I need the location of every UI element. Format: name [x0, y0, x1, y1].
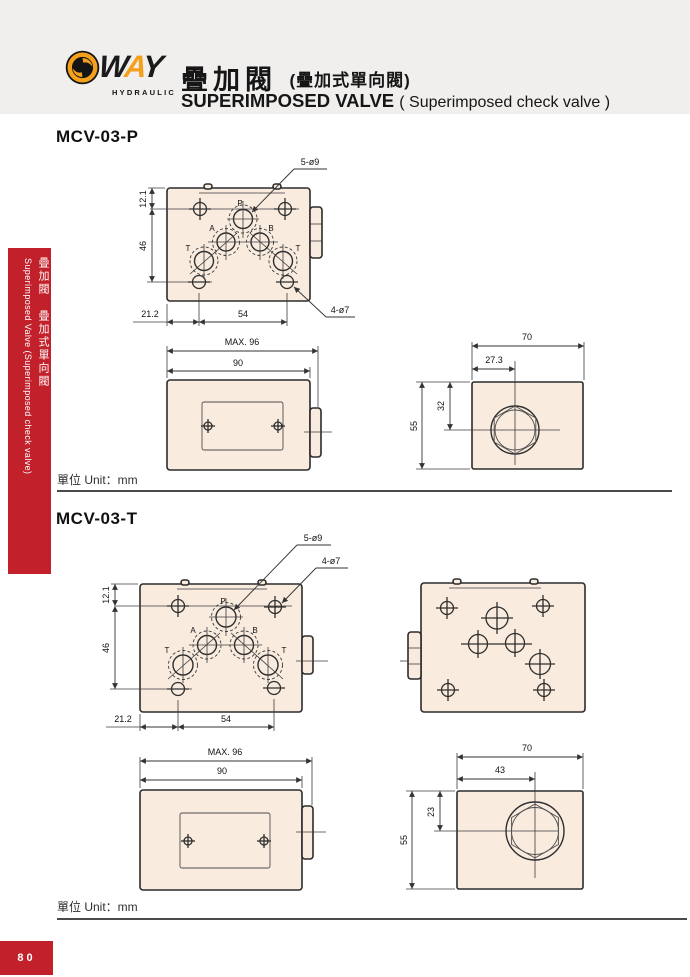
- catalog-page: WAY HYDRAULIC 疊加閥 (疊加式單向閥) SUPERIMPOSED …: [0, 0, 690, 977]
- callout-4-d7: 4-ø7: [331, 305, 350, 315]
- section-heading-mcv03p: MCV-03-P: [56, 127, 138, 147]
- callout-4-d7: 4-ø7: [322, 556, 341, 566]
- side-tab-en: Superimposed Valve (Superimposed check v…: [23, 258, 33, 574]
- dim-70: 70: [522, 332, 532, 342]
- port-label-t2: T: [282, 646, 287, 655]
- dim-55: 55: [399, 835, 409, 845]
- check-cartridge: [408, 632, 421, 679]
- port-label-b: B: [252, 626, 257, 635]
- dim-27-3: 27.3: [485, 355, 503, 365]
- dim-90: 90: [233, 358, 243, 368]
- port-label-t1: T: [186, 244, 191, 253]
- side-tab-cn: 疊加閥 疊加式單向閥: [35, 257, 51, 574]
- page-title-en: SUPERIMPOSED VALVE ( Superimposed check …: [181, 90, 610, 112]
- title-en-note: ( Superimposed check valve ): [399, 94, 610, 111]
- dim-21-2: 21.2: [141, 309, 159, 319]
- dim-54: 54: [221, 714, 231, 724]
- brand-wordmark: WAY: [97, 49, 163, 85]
- mcv03t-drawings: P A B T T 12.1 46 21.2 54 5-ø9 4-ø7: [50, 528, 690, 896]
- port-label-a: A: [209, 224, 215, 233]
- title-cn-note: (疊加式單向閥): [290, 71, 411, 90]
- dim-12-1: 12.1: [101, 586, 111, 604]
- dim-max96: MAX. 96: [225, 337, 260, 347]
- dim-32: 32: [436, 401, 446, 411]
- unit-note-t: 單位 Unit：mm: [57, 898, 138, 915]
- callout-5-d9: 5-ø9: [304, 533, 323, 543]
- footer-divider: [57, 918, 687, 920]
- dim-46: 46: [101, 643, 111, 653]
- page-number: 80: [0, 941, 53, 975]
- mcv03p-top-view: P A B T T 12.1 46 21.2 54 5-ø9 4-ø7: [133, 157, 355, 326]
- dim-max96: MAX. 96: [208, 747, 243, 757]
- valve-body: [167, 380, 310, 470]
- dim-90: 90: [217, 766, 227, 776]
- dim-43: 43: [495, 765, 505, 775]
- port-label-a: A: [190, 626, 196, 635]
- callout-5-d9: 5-ø9: [301, 157, 320, 167]
- section-divider: [57, 490, 672, 492]
- check-cartridge: [302, 636, 313, 674]
- dim-70: 70: [522, 743, 532, 753]
- mcv03t-front-view: MAX. 96 90: [140, 747, 326, 890]
- mcv03p-front-view: MAX. 96 90: [167, 337, 332, 470]
- chapter-side-tab: 疊加閥 疊加式單向閥 Superimposed Valve (Superimpo…: [8, 248, 51, 574]
- valve-body: [421, 583, 585, 712]
- section-heading-mcv03t: MCV-03-T: [56, 509, 137, 529]
- mcv03t-side-view: 70 43 55 23: [399, 743, 583, 889]
- mcv03p-side-view: 70 27.3 55 32: [409, 332, 584, 469]
- valve-body: [140, 790, 302, 890]
- brand-subtitle: HYDRAULIC: [112, 88, 176, 97]
- way-logo-icon: [65, 50, 100, 85]
- mcv03t-bottom-view: [400, 579, 585, 712]
- brand-letter-y: Y: [141, 49, 163, 84]
- check-cartridge: [310, 207, 322, 258]
- title-en-main: SUPERIMPOSED VALVE: [181, 90, 394, 111]
- port-label-p: P: [220, 597, 225, 606]
- port-label-b: B: [268, 224, 273, 233]
- dim-46: 46: [138, 241, 148, 251]
- unit-note-p: 單位 Unit：mm: [57, 471, 138, 488]
- dim-55: 55: [409, 421, 419, 431]
- page-header: WAY HYDRAULIC 疊加閥 (疊加式單向閥) SUPERIMPOSED …: [0, 0, 690, 114]
- dim-12-1: 12.1: [138, 190, 148, 208]
- port-label-t1: T: [165, 646, 170, 655]
- brand-letter-w: W: [97, 49, 126, 84]
- dim-54: 54: [238, 309, 248, 319]
- mcv03p-drawings: P A B T T 12.1 46 21.2 54 5-ø9 4-ø7: [50, 148, 690, 488]
- mcv03t-top-view: P A B T T 12.1 46 21.2 54 5-ø9 4-ø7: [101, 533, 348, 731]
- port-label-p: P: [237, 199, 242, 208]
- dim-23: 23: [426, 807, 436, 817]
- port-label-t2: T: [296, 244, 301, 253]
- dim-21-2: 21.2: [114, 714, 132, 724]
- valve-body: [472, 382, 583, 469]
